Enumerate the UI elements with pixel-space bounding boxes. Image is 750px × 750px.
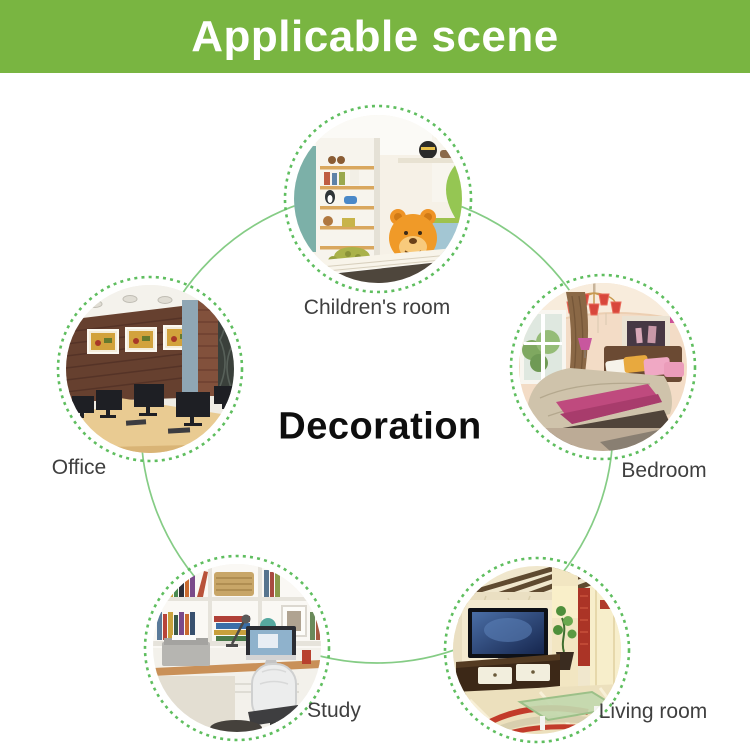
header-banner: Applicable scene bbox=[0, 0, 750, 73]
label-study: Study bbox=[307, 699, 361, 723]
page-title: Applicable scene bbox=[191, 12, 558, 62]
scene-diagram bbox=[0, 0, 750, 750]
center-label: Decoration bbox=[278, 406, 481, 449]
bedroom-photo bbox=[519, 283, 687, 451]
living-room-photo bbox=[453, 566, 621, 734]
office-photo bbox=[66, 285, 236, 453]
label-office: Office bbox=[52, 456, 106, 480]
label-childrens-room: Children's room bbox=[304, 296, 450, 320]
childrens-room-photo bbox=[294, 115, 462, 290]
page: Applicable scene bbox=[0, 0, 750, 750]
label-bedroom: Bedroom bbox=[621, 459, 706, 483]
label-living-room: Living room bbox=[599, 700, 708, 724]
study-photo bbox=[153, 564, 321, 736]
